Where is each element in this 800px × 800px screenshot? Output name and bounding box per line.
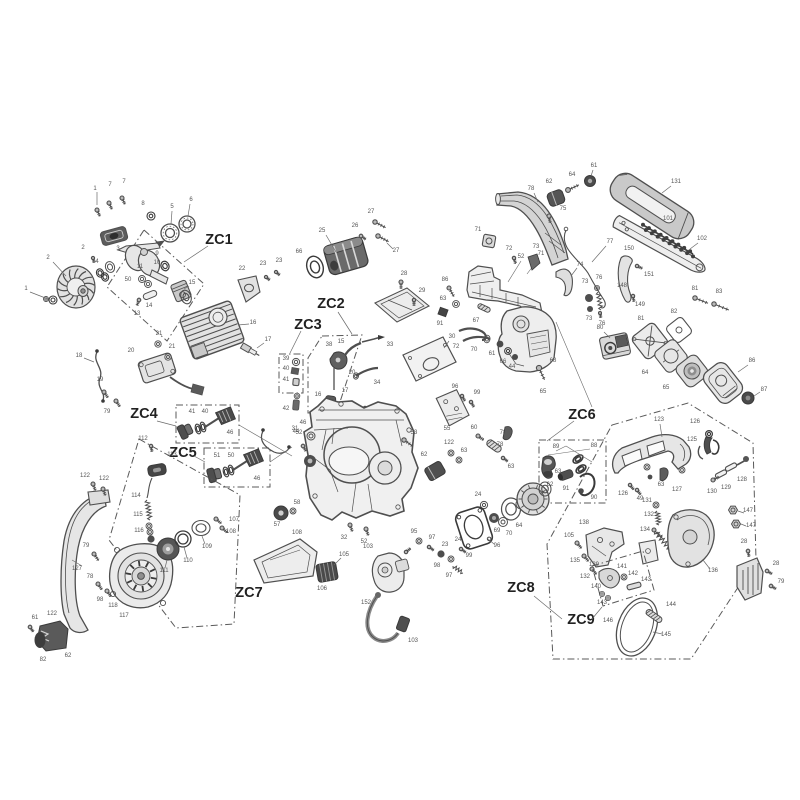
svg-text:106: 106 xyxy=(317,586,328,592)
svg-text:98: 98 xyxy=(97,597,104,603)
svg-text:64: 64 xyxy=(516,523,523,529)
svg-text:34: 34 xyxy=(374,380,381,386)
svg-text:51: 51 xyxy=(214,453,221,459)
svg-text:74: 74 xyxy=(577,262,584,268)
svg-text:96: 96 xyxy=(452,384,459,390)
svg-text:141: 141 xyxy=(617,564,628,570)
svg-text:63: 63 xyxy=(555,469,562,475)
svg-text:25: 25 xyxy=(319,228,326,234)
svg-text:23: 23 xyxy=(276,258,283,264)
svg-text:58: 58 xyxy=(294,500,301,506)
svg-text:17: 17 xyxy=(342,388,349,394)
svg-text:27: 27 xyxy=(393,248,400,254)
svg-text:81: 81 xyxy=(638,316,645,322)
svg-text:57: 57 xyxy=(274,522,281,528)
svg-text:127: 127 xyxy=(672,487,683,493)
svg-text:96: 96 xyxy=(494,543,501,549)
svg-text:28: 28 xyxy=(401,271,408,277)
svg-text:62: 62 xyxy=(546,179,553,185)
svg-text:19: 19 xyxy=(97,377,104,383)
svg-text:65: 65 xyxy=(663,385,670,391)
svg-text:134: 134 xyxy=(640,527,651,533)
svg-text:ZC4: ZC4 xyxy=(130,406,157,422)
svg-text:40: 40 xyxy=(283,366,290,372)
svg-text:50: 50 xyxy=(228,453,235,459)
svg-text:83: 83 xyxy=(716,289,723,295)
svg-text:103: 103 xyxy=(363,544,374,550)
svg-text:24: 24 xyxy=(455,537,462,543)
svg-text:75: 75 xyxy=(560,206,567,212)
svg-text:131: 131 xyxy=(642,498,653,504)
svg-text:77: 77 xyxy=(607,239,614,245)
svg-text:70: 70 xyxy=(471,347,478,353)
svg-text:46: 46 xyxy=(300,420,307,426)
svg-text:62: 62 xyxy=(421,452,428,458)
svg-text:21: 21 xyxy=(156,331,163,337)
svg-text:44: 44 xyxy=(509,364,516,370)
svg-text:148: 148 xyxy=(617,283,628,289)
svg-text:114: 114 xyxy=(131,493,141,499)
svg-text:33: 33 xyxy=(387,342,394,348)
svg-text:135: 135 xyxy=(570,558,581,564)
svg-text:15: 15 xyxy=(338,339,345,345)
svg-text:23: 23 xyxy=(260,261,267,267)
svg-text:97: 97 xyxy=(429,535,436,541)
svg-text:46: 46 xyxy=(227,430,234,436)
svg-text:23: 23 xyxy=(442,542,449,548)
svg-text:61: 61 xyxy=(489,351,496,357)
svg-text:122: 122 xyxy=(444,440,455,446)
svg-text:30: 30 xyxy=(449,334,456,340)
svg-text:116: 116 xyxy=(134,528,144,534)
svg-text:108: 108 xyxy=(292,530,303,536)
svg-text:122: 122 xyxy=(47,611,58,617)
svg-text:41: 41 xyxy=(189,409,196,415)
svg-text:46: 46 xyxy=(254,476,261,482)
svg-text:107: 107 xyxy=(229,517,240,523)
svg-text:79: 79 xyxy=(83,543,90,549)
svg-text:86: 86 xyxy=(442,277,449,283)
svg-text:42: 42 xyxy=(283,406,290,412)
svg-text:143: 143 xyxy=(641,577,652,583)
svg-text:64: 64 xyxy=(569,172,576,178)
svg-text:52: 52 xyxy=(518,254,525,260)
svg-text:71: 71 xyxy=(475,227,482,233)
svg-text:80: 80 xyxy=(597,325,604,331)
svg-text:108: 108 xyxy=(226,529,237,535)
svg-text:98: 98 xyxy=(434,563,441,569)
svg-text:82: 82 xyxy=(671,309,678,315)
svg-text:ZC6: ZC6 xyxy=(568,407,595,423)
svg-text:55: 55 xyxy=(444,426,451,432)
svg-text:151: 151 xyxy=(644,272,655,278)
svg-text:63: 63 xyxy=(508,464,515,470)
svg-text:138: 138 xyxy=(579,520,590,526)
svg-text:122: 122 xyxy=(80,473,91,479)
svg-text:90: 90 xyxy=(591,495,598,501)
svg-text:99: 99 xyxy=(466,553,473,559)
svg-text:95: 95 xyxy=(411,529,418,535)
svg-text:72: 72 xyxy=(506,246,513,252)
svg-text:68: 68 xyxy=(550,358,557,364)
svg-text:126: 126 xyxy=(690,419,701,425)
svg-text:132: 132 xyxy=(580,574,591,580)
svg-text:91: 91 xyxy=(437,321,444,327)
svg-text:147: 147 xyxy=(743,508,754,514)
svg-text:50: 50 xyxy=(125,277,132,283)
svg-text:78: 78 xyxy=(87,574,94,580)
svg-text:28: 28 xyxy=(741,539,748,545)
svg-text:16: 16 xyxy=(315,392,322,398)
svg-text:13: 13 xyxy=(134,311,141,317)
svg-text:127: 127 xyxy=(72,566,83,572)
svg-text:65: 65 xyxy=(540,389,547,395)
svg-text:61: 61 xyxy=(32,615,39,621)
svg-text:110: 110 xyxy=(183,558,193,564)
svg-text:64: 64 xyxy=(642,370,649,376)
svg-text:125: 125 xyxy=(687,437,698,443)
svg-text:29: 29 xyxy=(419,288,426,294)
svg-text:140: 140 xyxy=(591,584,602,590)
svg-text:66: 66 xyxy=(296,249,303,255)
svg-text:40: 40 xyxy=(202,409,209,415)
svg-text:73: 73 xyxy=(582,279,589,285)
svg-text:113: 113 xyxy=(167,452,177,458)
svg-text:63: 63 xyxy=(658,482,665,488)
svg-text:79: 79 xyxy=(104,409,111,415)
svg-text:10: 10 xyxy=(154,260,161,266)
svg-text:69: 69 xyxy=(494,528,501,534)
svg-text:152: 152 xyxy=(361,600,372,606)
svg-text:22: 22 xyxy=(239,266,246,272)
svg-text:76: 76 xyxy=(596,275,603,281)
svg-text:27: 27 xyxy=(368,209,375,215)
svg-text:63: 63 xyxy=(461,448,468,454)
svg-text:20: 20 xyxy=(128,348,135,354)
svg-text:99: 99 xyxy=(474,390,481,396)
svg-text:38: 38 xyxy=(326,342,333,348)
svg-text:105: 105 xyxy=(564,533,575,539)
svg-text:71: 71 xyxy=(538,251,545,257)
svg-text:126: 126 xyxy=(618,491,629,497)
svg-text:112: 112 xyxy=(138,436,148,442)
svg-text:ZC3: ZC3 xyxy=(294,317,321,333)
svg-text:73: 73 xyxy=(586,316,593,322)
svg-text:128: 128 xyxy=(737,477,748,483)
svg-text:101: 101 xyxy=(663,216,674,222)
svg-text:15: 15 xyxy=(189,280,196,286)
svg-text:105: 105 xyxy=(339,552,350,558)
svg-text:63: 63 xyxy=(440,296,447,302)
svg-text:11: 11 xyxy=(137,264,144,270)
svg-text:14: 14 xyxy=(146,303,153,309)
svg-text:24: 24 xyxy=(475,492,482,498)
svg-text:97: 97 xyxy=(446,573,453,579)
svg-text:143: 143 xyxy=(597,600,608,606)
svg-text:62: 62 xyxy=(65,653,72,659)
svg-text:103: 103 xyxy=(408,638,419,644)
svg-text:72: 72 xyxy=(453,344,460,350)
svg-text:17: 17 xyxy=(265,337,272,343)
svg-text:118: 118 xyxy=(108,603,118,609)
svg-text:150: 150 xyxy=(624,246,635,252)
svg-text:18: 18 xyxy=(76,353,83,359)
svg-text:78: 78 xyxy=(497,442,504,448)
svg-text:88: 88 xyxy=(591,443,598,449)
svg-text:115: 115 xyxy=(133,512,143,518)
svg-text:117: 117 xyxy=(119,613,129,619)
svg-text:53: 53 xyxy=(411,430,418,436)
svg-text:ZC7: ZC7 xyxy=(235,585,262,601)
svg-text:ZC9: ZC9 xyxy=(567,612,594,628)
svg-text:142: 142 xyxy=(628,571,639,577)
svg-text:67: 67 xyxy=(473,318,480,324)
svg-text:ZC8: ZC8 xyxy=(507,580,534,596)
svg-text:122: 122 xyxy=(99,476,110,482)
svg-text:130: 130 xyxy=(707,489,718,495)
svg-text:89: 89 xyxy=(553,444,560,450)
svg-text:147: 147 xyxy=(746,523,757,529)
svg-text:73: 73 xyxy=(533,244,540,250)
svg-text:81: 81 xyxy=(692,286,699,292)
svg-text:41: 41 xyxy=(283,377,290,383)
svg-text:123: 123 xyxy=(654,417,665,423)
svg-text:102: 102 xyxy=(697,236,708,242)
svg-text:82: 82 xyxy=(40,657,47,663)
svg-text:131: 131 xyxy=(671,179,682,185)
svg-text:78: 78 xyxy=(528,186,535,192)
svg-text:ZC1: ZC1 xyxy=(205,232,232,248)
svg-text:145: 145 xyxy=(661,632,672,638)
svg-text:26: 26 xyxy=(352,223,359,229)
svg-text:111: 111 xyxy=(159,568,169,574)
svg-text:146: 146 xyxy=(603,618,614,624)
svg-text:86: 86 xyxy=(749,358,756,364)
svg-text:44: 44 xyxy=(293,429,300,435)
svg-text:144: 144 xyxy=(666,602,677,608)
svg-text:79: 79 xyxy=(778,579,785,585)
svg-text:87: 87 xyxy=(761,387,768,393)
svg-text:139: 139 xyxy=(589,562,600,568)
svg-text:ZC2: ZC2 xyxy=(317,296,344,312)
svg-text:132: 132 xyxy=(644,512,655,518)
svg-text:66: 66 xyxy=(500,359,507,365)
svg-text:16: 16 xyxy=(250,320,257,326)
svg-text:28: 28 xyxy=(773,561,780,567)
svg-text:32: 32 xyxy=(341,535,348,541)
svg-text:149: 149 xyxy=(635,302,646,308)
svg-text:91: 91 xyxy=(563,486,570,492)
svg-text:60: 60 xyxy=(471,425,478,431)
svg-text:61: 61 xyxy=(591,163,598,169)
svg-text:70: 70 xyxy=(506,531,513,537)
svg-text:129: 129 xyxy=(721,485,732,491)
svg-text:39: 39 xyxy=(283,356,290,362)
svg-text:21: 21 xyxy=(169,344,176,350)
svg-text:109: 109 xyxy=(202,544,213,550)
